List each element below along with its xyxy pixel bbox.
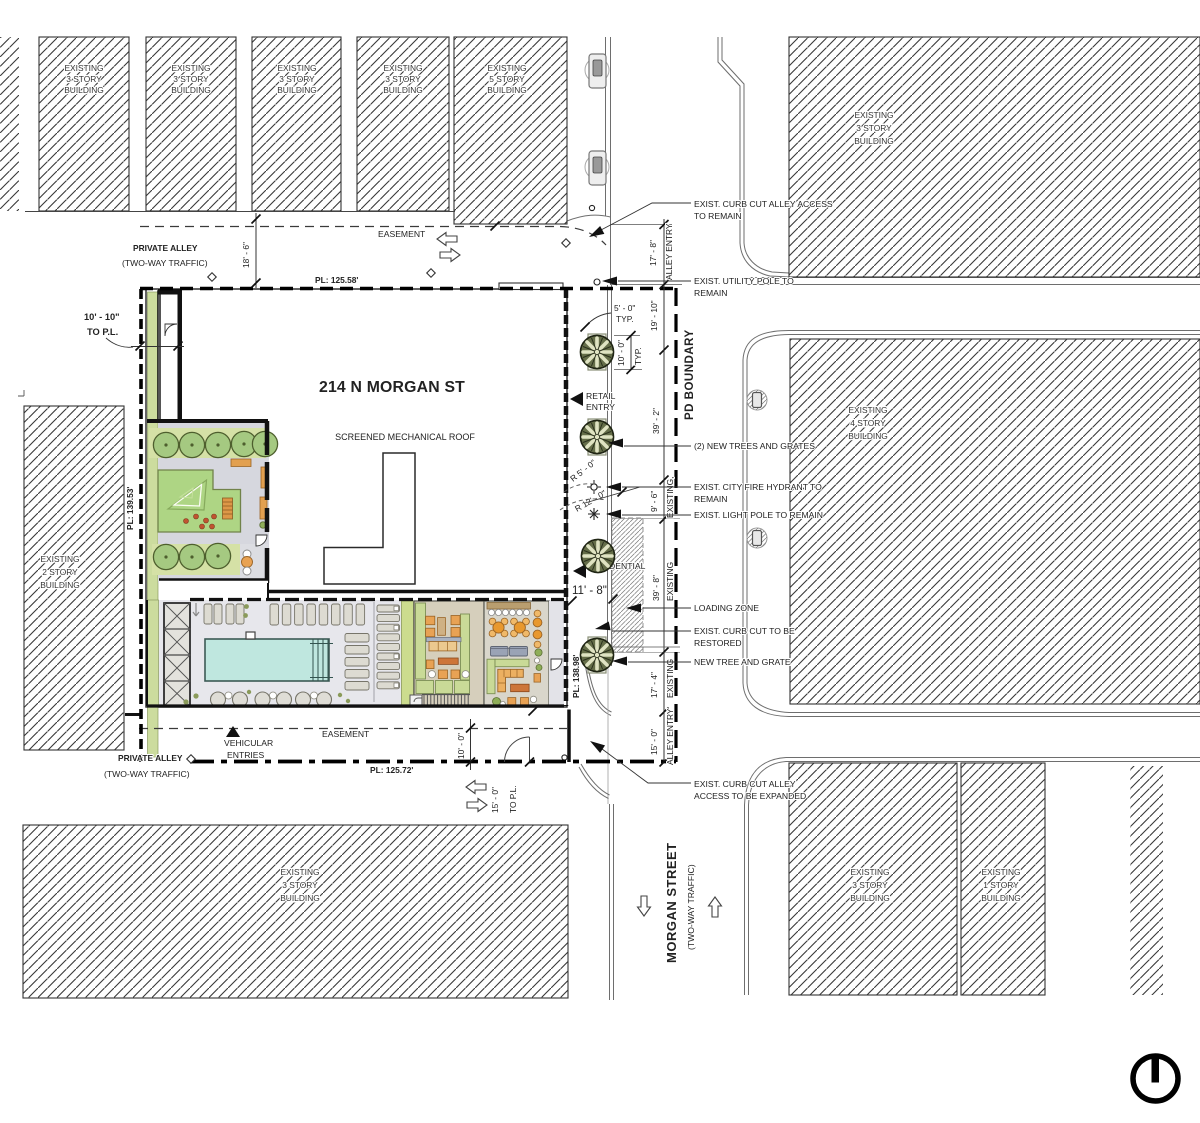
svg-text:4 STORY: 4 STORY — [850, 418, 886, 428]
svg-text:214 N MORGAN ST: 214 N MORGAN ST — [319, 379, 465, 396]
svg-text:EXIST. CURB CUT ALLEY ACCESS: EXIST. CURB CUT ALLEY ACCESS — [694, 199, 833, 209]
svg-text:BUILDING: BUILDING — [171, 85, 211, 95]
svg-text:11' - 8": 11' - 8" — [572, 585, 607, 597]
svg-text:EXISTING: EXISTING — [487, 63, 526, 73]
svg-text:MORGAN STREET: MORGAN STREET — [664, 842, 679, 963]
svg-text:PRIVATE ALLEY: PRIVATE ALLEY — [133, 243, 198, 253]
svg-text:NEW TREE AND GRATE: NEW TREE AND GRATE — [694, 657, 791, 667]
svg-text:3 STORY: 3 STORY — [856, 123, 892, 133]
svg-text:EXISTING: EXISTING — [280, 867, 319, 877]
svg-text:BUILDING: BUILDING — [981, 893, 1021, 903]
svg-text:EXIST. CURB CUT TO BE: EXIST. CURB CUT TO BE — [694, 626, 795, 636]
svg-text:3 STORY: 3 STORY — [279, 74, 315, 84]
svg-text:10' - 0": 10' - 0" — [616, 340, 626, 366]
svg-text:3 STORY: 3 STORY — [173, 74, 209, 84]
svg-text:EXISTING: EXISTING — [981, 867, 1020, 877]
svg-text:EXIST. UTILITY POLE TO: EXIST. UTILITY POLE TO — [694, 276, 794, 286]
svg-text:PL: 138.98': PL: 138.98' — [571, 655, 581, 698]
svg-text:PL: 125.58': PL: 125.58' — [315, 275, 358, 285]
svg-text:3 STORY: 3 STORY — [282, 880, 318, 890]
svg-text:EXISTING,: EXISTING, — [665, 477, 675, 518]
svg-text:LOADING ZONE: LOADING ZONE — [694, 603, 759, 613]
svg-text:17' - 4": 17' - 4" — [649, 672, 659, 698]
svg-text:BUILDING: BUILDING — [64, 85, 104, 95]
svg-text:(TWO-WAY TRAFFIC): (TWO-WAY TRAFFIC) — [686, 864, 696, 950]
svg-text:EXIST. CURB CUT ALLEY: EXIST. CURB CUT ALLEY — [694, 779, 796, 789]
svg-text:TO P.L.: TO P.L. — [87, 327, 118, 337]
svg-text:EXISTING: EXISTING — [40, 554, 79, 564]
svg-text:ENTRIES: ENTRIES — [227, 750, 265, 760]
svg-text:15' - 0": 15' - 0" — [490, 787, 500, 813]
svg-text:(2) NEW TREES AND GRATES: (2) NEW TREES AND GRATES — [694, 441, 815, 451]
svg-text:EXISTING: EXISTING — [665, 659, 675, 698]
svg-text:15' - 0": 15' - 0" — [649, 729, 659, 755]
svg-text:3 STORY: 3 STORY — [852, 880, 888, 890]
svg-text:BUILDING: BUILDING — [280, 893, 320, 903]
svg-text:1 STORY: 1 STORY — [983, 880, 1019, 890]
svg-text:EXISTING: EXISTING — [64, 63, 103, 73]
svg-text:5 STORY: 5 STORY — [489, 74, 525, 84]
svg-text:ALLEY ENTRY: ALLEY ENTRY — [664, 223, 674, 280]
svg-text:EXISTING: EXISTING — [383, 63, 422, 73]
svg-text:REMAIN: REMAIN — [694, 288, 727, 298]
svg-text:5' - 0": 5' - 0" — [614, 303, 635, 313]
svg-text:10' - 10": 10' - 10" — [84, 312, 120, 322]
svg-text:BUILDING: BUILDING — [854, 136, 894, 146]
svg-text:EASEMENT: EASEMENT — [378, 229, 426, 239]
svg-text:BUILDING: BUILDING — [277, 85, 317, 95]
svg-text:EXISTING: EXISTING — [665, 562, 675, 601]
svg-text:17' - 8": 17' - 8" — [648, 240, 658, 266]
svg-text:19' - 10": 19' - 10" — [649, 300, 659, 331]
svg-text:3 STORY: 3 STORY — [66, 74, 102, 84]
svg-text:EXISTING: EXISTING — [277, 63, 316, 73]
svg-text:2 STORY: 2 STORY — [42, 567, 78, 577]
svg-text:BUILDING: BUILDING — [848, 431, 888, 441]
svg-text:TO REMAIN: TO REMAIN — [694, 211, 742, 221]
svg-text:EXISTING: EXISTING — [854, 110, 893, 120]
svg-text:39' - 8": 39' - 8" — [651, 575, 661, 601]
svg-text:REMAIN: REMAIN — [694, 494, 727, 504]
svg-text:EXISTING: EXISTING — [850, 867, 889, 877]
svg-text:BUILDING: BUILDING — [850, 893, 890, 903]
svg-text:39' - 2": 39' - 2" — [651, 408, 661, 434]
svg-text:RESTORED: RESTORED — [694, 638, 742, 648]
svg-text:10' - 0": 10' - 0" — [456, 733, 466, 759]
svg-text:TYP.: TYP. — [616, 314, 634, 324]
svg-text:ENTRY: ENTRY — [586, 402, 615, 412]
svg-text:PL: 139.53': PL: 139.53' — [125, 487, 135, 530]
svg-text:VEHICULAR: VEHICULAR — [224, 738, 273, 748]
svg-text:PL: 125.72': PL: 125.72' — [370, 765, 413, 775]
svg-text:(TWO-WAY TRAFFIC): (TWO-WAY TRAFFIC) — [122, 258, 208, 268]
svg-text:18' - 6": 18' - 6" — [241, 242, 251, 268]
svg-text:TO P.L.: TO P.L. — [508, 785, 518, 813]
svg-text:(TWO-WAY TRAFFIC): (TWO-WAY TRAFFIC) — [104, 769, 190, 779]
svg-text:BUILDING: BUILDING — [40, 580, 80, 590]
svg-text:EXIST. LIGHT POLE TO REMAIN: EXIST. LIGHT POLE TO REMAIN — [694, 510, 823, 520]
svg-text:SCREENED MECHANICAL ROOF: SCREENED MECHANICAL ROOF — [335, 432, 475, 442]
svg-text:ACCESS TO BE EXPANDED: ACCESS TO BE EXPANDED — [694, 791, 806, 801]
svg-text:EXISTING: EXISTING — [848, 405, 887, 415]
svg-text:9' - 6": 9' - 6" — [649, 491, 659, 512]
svg-text:EXIST. CITY FIRE HYDRANT TO: EXIST. CITY FIRE HYDRANT TO — [694, 482, 822, 492]
svg-text:3 STORY: 3 STORY — [385, 74, 421, 84]
svg-text:BUILDING: BUILDING — [383, 85, 423, 95]
svg-text:ALLEY ENTRY: ALLEY ENTRY — [665, 708, 675, 765]
svg-text:RETAIL: RETAIL — [586, 391, 616, 401]
svg-text:PRIVATE ALLEY: PRIVATE ALLEY — [118, 753, 183, 763]
svg-text:TYP.: TYP. — [633, 347, 643, 365]
svg-text:BUILDING: BUILDING — [487, 85, 527, 95]
svg-text:PD BOUNDARY: PD BOUNDARY — [684, 329, 696, 420]
svg-text:EASEMENT: EASEMENT — [322, 729, 370, 739]
svg-text:EXISTING: EXISTING — [171, 63, 210, 73]
